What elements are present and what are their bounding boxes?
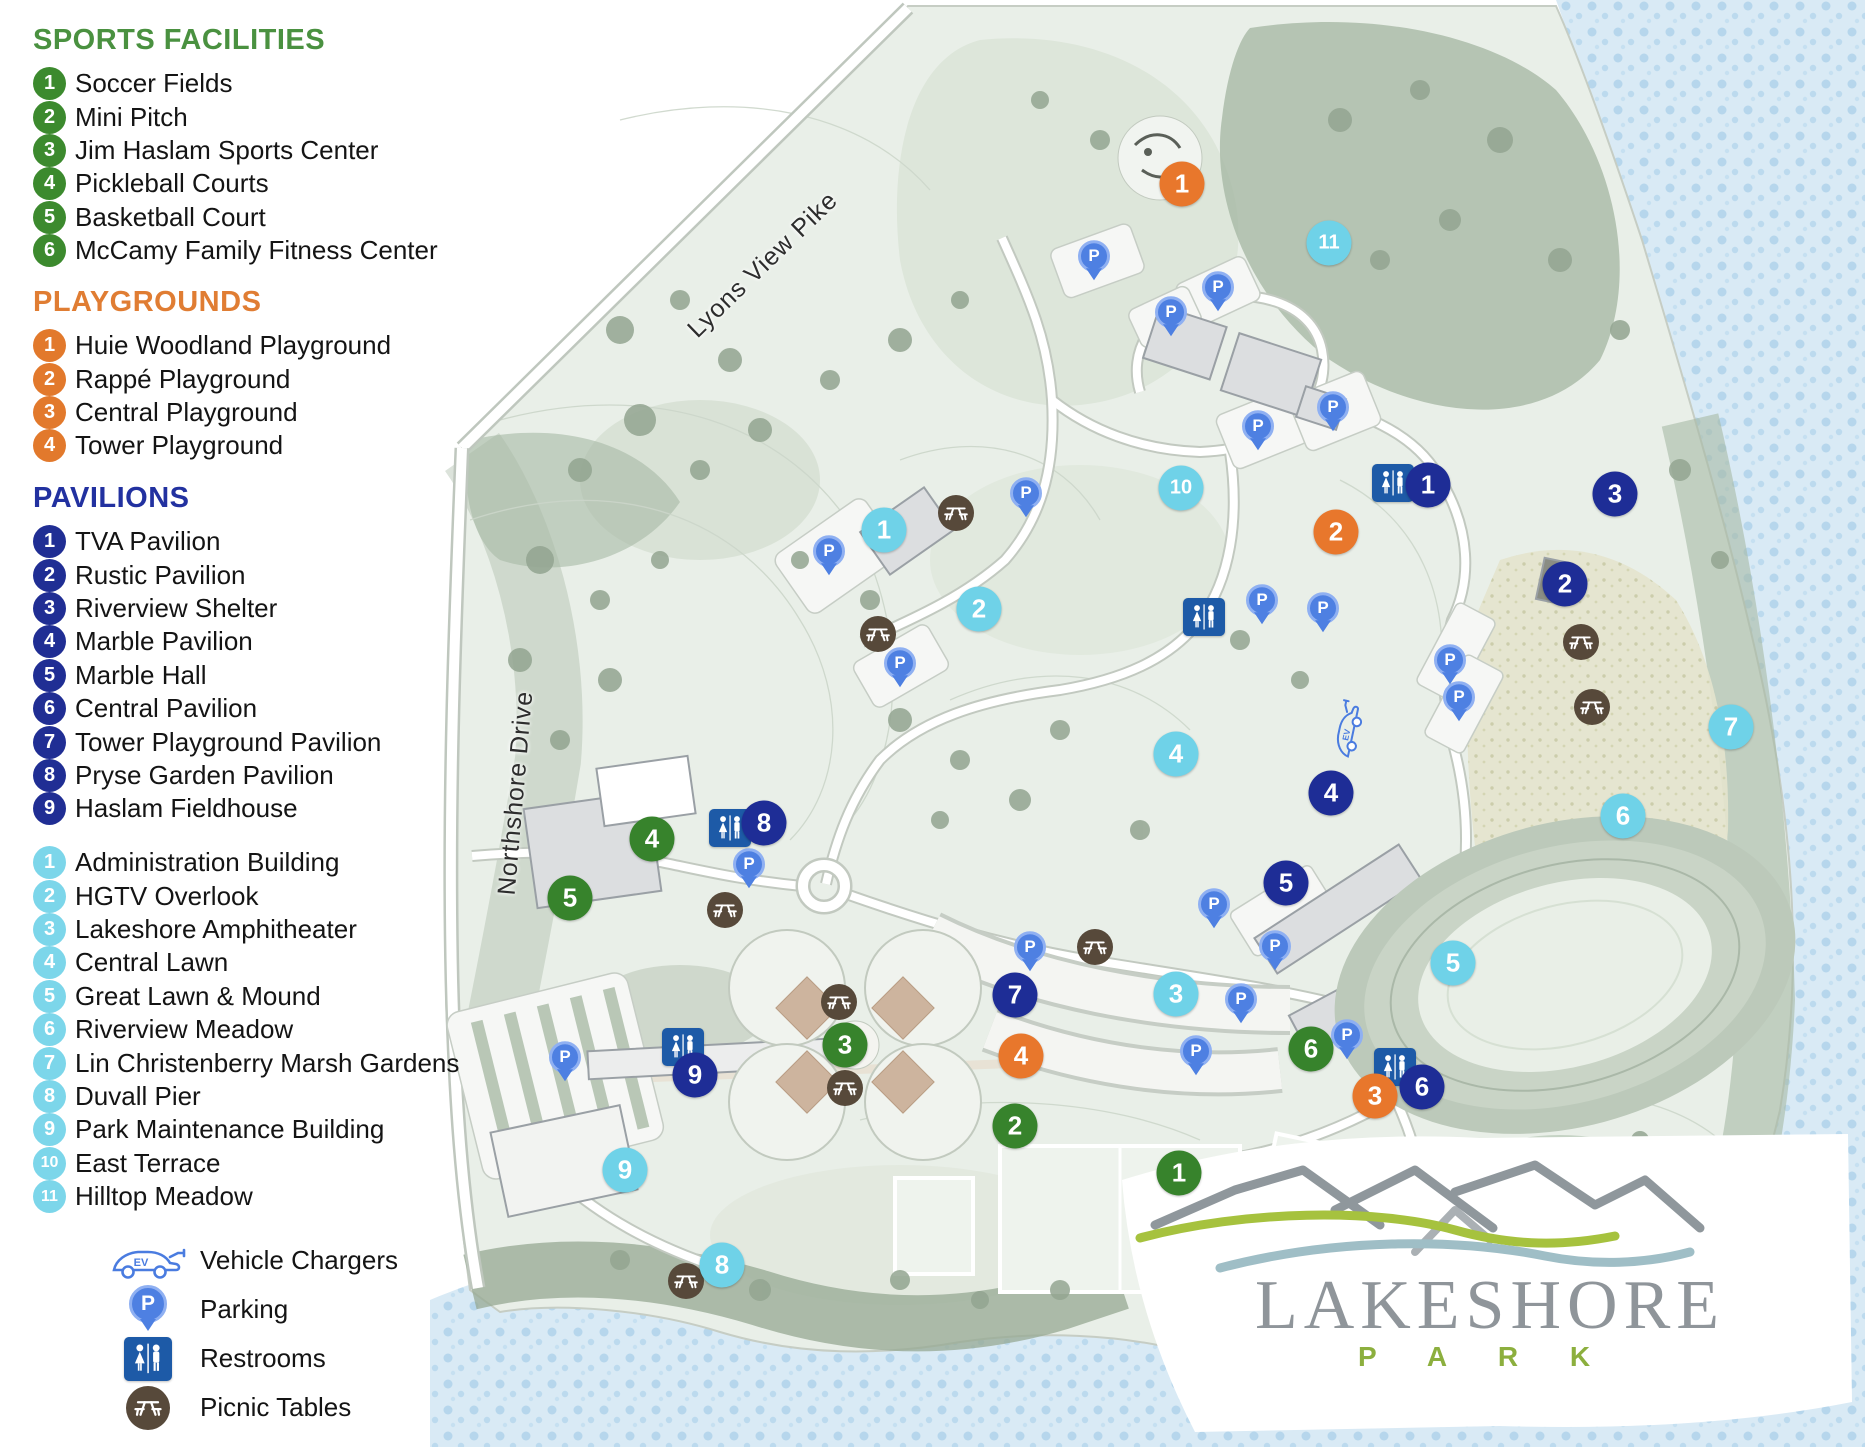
legend-item-number: 2 <box>33 880 66 913</box>
legend-item-label: Pryse Garden Pavilion <box>75 760 334 791</box>
map-marker-features-11: 11 <box>1307 221 1352 266</box>
legend-item-number: 1 <box>33 525 66 558</box>
legend-item-label: Huie Woodland Playground <box>75 330 391 361</box>
legend-item-label: Pickleball Courts <box>75 168 269 199</box>
parking-icon: P <box>100 1285 196 1335</box>
parking-pin: P <box>1246 584 1278 616</box>
marker-number: 2 <box>1329 517 1343 548</box>
legend-item-label: Lakeshore Amphitheater <box>75 914 357 945</box>
map-marker-features-2: 2 <box>957 587 1002 632</box>
legend-item-label: Mini Pitch <box>75 102 188 133</box>
legend-item-label: Jim Haslam Sports Center <box>75 135 378 166</box>
legend-item-number: 5 <box>33 980 66 1013</box>
map-marker-pavilions-4: 4 <box>1309 771 1354 816</box>
parking-pin: P <box>549 1041 581 1073</box>
legend-item-label: Park Maintenance Building <box>75 1114 384 1145</box>
picnic-table-icon <box>707 892 743 928</box>
legend-item-label: TVA Pavilion <box>75 526 220 557</box>
parking-pin: P <box>1307 592 1339 624</box>
legend-item-number: 2 <box>33 101 66 134</box>
legend-item-number: 5 <box>33 659 66 692</box>
legend-symbol-restrooms: Restrooms <box>100 1334 398 1383</box>
parking-pin: P <box>1155 296 1187 328</box>
legend-item-number: 10 <box>33 1147 66 1180</box>
parking-pin: P <box>1443 681 1475 713</box>
marker-number: 8 <box>715 1250 729 1281</box>
marker-number: 6 <box>1304 1034 1318 1065</box>
map-marker-features-5: 5 <box>1431 941 1476 986</box>
legend-item-number: 1 <box>33 67 66 100</box>
legend-item-number: 7 <box>33 726 66 759</box>
legend-item-label: East Terrace <box>75 1148 220 1179</box>
legend-item-label: HGTV Overlook <box>75 881 259 912</box>
picnic-table-icon <box>1077 929 1113 965</box>
legend-item: 8Duvall Pier <box>33 1080 459 1113</box>
logo-name: LAKESHORE <box>1255 1267 1725 1344</box>
svg-text:EV: EV <box>134 1257 149 1269</box>
map-marker-features-6: 6 <box>1601 794 1646 839</box>
legend-item: 5Great Lawn & Mound <box>33 980 459 1013</box>
legend-symbol-parking: PParking <box>100 1285 398 1334</box>
map-marker-pavilions-8: 8 <box>742 801 787 846</box>
marker-number: 8 <box>757 808 771 839</box>
legend-item-label: Central Playground <box>75 397 298 428</box>
legend-item: 1Huie Woodland Playground <box>33 329 391 362</box>
picnic-icon <box>100 1386 196 1430</box>
legend-item: 4Marble Pavilion <box>33 625 381 658</box>
legend-section-pavilions: PAVILIONS1TVA Pavilion2Rustic Pavilion3R… <box>33 482 381 826</box>
legend-item: 6McCamy Family Fitness Center <box>33 234 438 267</box>
legend-item-label: Haslam Fieldhouse <box>75 793 298 824</box>
restroom-icon <box>1183 598 1225 636</box>
map-marker-playgrounds-3: 3 <box>1353 1074 1398 1119</box>
legend-item-number: 2 <box>33 363 66 396</box>
legend-symbol-ev: EVVehicle Chargers <box>100 1236 398 1285</box>
legend-item-label: Marble Pavilion <box>75 626 253 657</box>
marker-number: 4 <box>1014 1041 1028 1072</box>
parking-pin: P <box>1198 888 1230 920</box>
legend-item: 4Central Lawn <box>33 946 459 979</box>
map-marker-playgrounds-1: 1 <box>1160 162 1205 207</box>
legend-item-number: 9 <box>33 1113 66 1146</box>
legend-item-label: Rustic Pavilion <box>75 560 246 591</box>
map-marker-pavilions-2: 2 <box>1543 562 1588 607</box>
legend-item: 9Haslam Fieldhouse <box>33 792 381 825</box>
legend-item-number: 6 <box>33 234 66 267</box>
legend-symbol-picnic: Picnic Tables <box>100 1383 398 1432</box>
parking-pin: P <box>1010 477 1042 509</box>
legend-item-label: Lin Christenberry Marsh Gardens <box>75 1048 459 1079</box>
legend-item: 5Basketball Court <box>33 201 438 234</box>
legend-item: 6Central Pavilion <box>33 692 381 725</box>
map-marker-playgrounds-2: 2 <box>1314 510 1359 555</box>
marker-number: 3 <box>1169 979 1183 1010</box>
marker-number: 5 <box>563 883 577 914</box>
legend-symbol-label: Picnic Tables <box>200 1392 351 1423</box>
legend-section-playgrounds: PLAYGROUNDS1Huie Woodland Playground2Rap… <box>33 286 391 463</box>
legend-item-number: 3 <box>33 134 66 167</box>
map-marker-sports-3: 3 <box>823 1023 868 1068</box>
legend-item: 3Lakeshore Amphitheater <box>33 913 459 946</box>
map-marker-pavilions-3: 3 <box>1593 472 1638 517</box>
legend-item-number: 5 <box>33 201 66 234</box>
parking-pin: P <box>813 535 845 567</box>
map-marker-pavilions-5: 5 <box>1264 861 1309 906</box>
legend-item-label: McCamy Family Fitness Center <box>75 235 438 266</box>
legend-item: 4Pickleball Courts <box>33 167 438 200</box>
marker-number: 1 <box>877 515 891 546</box>
map-marker-pavilions-7: 7 <box>993 973 1038 1018</box>
map-marker-pavilions-6: 6 <box>1400 1065 1445 1110</box>
marker-number: 5 <box>1279 868 1293 899</box>
picnic-table-icon <box>938 495 974 531</box>
legend-item-number: 7 <box>33 1047 66 1080</box>
legend-item-number: 8 <box>33 759 66 792</box>
legend-symbol-label: Vehicle Chargers <box>200 1245 398 1276</box>
legend-item-number: 3 <box>33 913 66 946</box>
marker-number: 9 <box>688 1060 702 1091</box>
marker-number: 1 <box>1421 470 1435 501</box>
legend-item: 2Rustic Pavilion <box>33 558 381 591</box>
legend-item-number: 6 <box>33 692 66 725</box>
legend-item: 7Tower Playground Pavilion <box>33 725 381 758</box>
parking-pin: P <box>1242 410 1274 442</box>
legend-item: 4Tower Playground <box>33 429 391 462</box>
legend-item-label: Basketball Court <box>75 202 266 233</box>
legend-item: 8Pryse Garden Pavilion <box>33 759 381 792</box>
parking-pin: P <box>884 647 916 679</box>
legend-item: 1Soccer Fields <box>33 67 438 100</box>
picnic-table-icon <box>1574 689 1610 725</box>
legend-item-label: Tower Playground <box>75 430 283 461</box>
legend-item-label: Duvall Pier <box>75 1081 201 1112</box>
restrooms-icon <box>100 1337 196 1381</box>
marker-number: 1 <box>1175 169 1189 200</box>
map-marker-sports-6: 6 <box>1289 1027 1334 1072</box>
legend-item: 10East Terrace <box>33 1147 459 1180</box>
marker-number: 5 <box>1446 948 1460 979</box>
legend-item: 3Jim Haslam Sports Center <box>33 134 438 167</box>
marker-number: 3 <box>1608 479 1622 510</box>
map-marker-pavilions-9: 9 <box>673 1053 718 1098</box>
legend-item: 3Central Playground <box>33 396 391 429</box>
picnic-table-icon <box>827 1070 863 1106</box>
map-marker-features-10: 10 <box>1159 466 1204 511</box>
legend-item-label: Central Pavilion <box>75 693 257 724</box>
marker-number: 11 <box>1318 232 1339 255</box>
map-legend: SPORTS FACILITIES1Soccer Fields2Mini Pit… <box>0 0 440 1447</box>
legend-item-number: 1 <box>33 846 66 879</box>
map-marker-features-4: 4 <box>1154 732 1199 777</box>
legend-item-number: 3 <box>33 396 66 429</box>
legend-item-number: 6 <box>33 1013 66 1046</box>
legend-item-label: Rappé Playground <box>75 364 290 395</box>
legend-item-number: 2 <box>33 559 66 592</box>
parking-pin: P <box>1331 1019 1363 1051</box>
parking-pin: P <box>733 848 765 880</box>
legend-item-number: 1 <box>33 329 66 362</box>
map-marker-features-7: 7 <box>1709 705 1754 750</box>
parking-pin: P <box>1078 240 1110 272</box>
legend-item-label: Soccer Fields <box>75 68 233 99</box>
legend-item-number: 9 <box>33 792 66 825</box>
parking-pin: P <box>1317 391 1349 423</box>
legend-item-label: Tower Playground Pavilion <box>75 727 381 758</box>
map-marker-features-3: 3 <box>1154 972 1199 1017</box>
parking-pin: P <box>1202 271 1234 303</box>
legend-item-label: Hilltop Meadow <box>75 1181 253 1212</box>
picnic-table-icon <box>668 1263 704 1299</box>
legend-section-features: 1Administration Building2HGTV Overlook3L… <box>33 846 459 1213</box>
logo-sub: P A R K <box>1358 1341 1612 1372</box>
legend-item-number: 4 <box>33 625 66 658</box>
parking-pin: P <box>1259 930 1291 962</box>
legend-item-label: Riverview Shelter <box>75 593 277 624</box>
marker-number: 6 <box>1415 1072 1429 1103</box>
marker-number: 3 <box>1368 1081 1382 1112</box>
legend-item-label: Great Lawn & Mound <box>75 981 321 1012</box>
map-marker-sports-1: 1 <box>1157 1151 1202 1196</box>
ev-icon: EV <box>100 1240 196 1282</box>
legend-symbols: EVVehicle ChargersPParkingRestroomsPicni… <box>100 1236 398 1432</box>
legend-item: 1TVA Pavilion <box>33 525 381 558</box>
legend-item: 7Lin Christenberry Marsh Gardens <box>33 1046 459 1079</box>
picnic-table-icon <box>1563 624 1599 660</box>
legend-section-title: PLAYGROUNDS <box>33 286 391 319</box>
legend-item: 6Riverview Meadow <box>33 1013 459 1046</box>
legend-symbol-label: Parking <box>200 1294 288 1325</box>
marker-number: 4 <box>645 824 659 855</box>
map-marker-sports-5: 5 <box>548 876 593 921</box>
legend-item: 2HGTV Overlook <box>33 879 459 912</box>
legend-item: 3Riverview Shelter <box>33 592 381 625</box>
marker-number: 2 <box>1008 1111 1022 1142</box>
map-marker-playgrounds-4: 4 <box>999 1034 1044 1079</box>
legend-item-label: Central Lawn <box>75 947 228 978</box>
legend-item-number: 4 <box>33 946 66 979</box>
marker-number: 4 <box>1324 778 1338 809</box>
marker-number: 7 <box>1724 712 1738 743</box>
map-marker-pavilions-1: 1 <box>1406 463 1451 508</box>
park-map-poster: { "legend": { "sections": [ {"id":"sport… <box>0 0 1865 1447</box>
parking-pin: P <box>1225 983 1257 1015</box>
legend-item: 5Marble Hall <box>33 659 381 692</box>
legend-item-label: Riverview Meadow <box>75 1014 293 1045</box>
legend-item-number: 3 <box>33 592 66 625</box>
legend-item-number: 8 <box>33 1080 66 1113</box>
legend-item: 9Park Maintenance Building <box>33 1113 459 1146</box>
map-marker-features-1: 1 <box>862 508 907 553</box>
legend-item: 1Administration Building <box>33 846 459 879</box>
marker-number: 9 <box>618 1155 632 1186</box>
parking-pin: P <box>1434 644 1466 676</box>
parking-pin: P <box>1014 931 1046 963</box>
marker-number: 1 <box>1172 1158 1186 1189</box>
picnic-table-icon <box>821 984 857 1020</box>
marker-number: 10 <box>1170 477 1192 500</box>
legend-item-number: 4 <box>33 167 66 200</box>
map-marker-sports-2: 2 <box>993 1104 1038 1149</box>
map-marker-features-9: 9 <box>603 1148 648 1193</box>
legend-item: 11Hilltop Meadow <box>33 1180 459 1213</box>
map-marker-features-8: 8 <box>700 1243 745 1288</box>
marker-number: 2 <box>972 594 986 625</box>
legend-section-sports: SPORTS FACILITIES1Soccer Fields2Mini Pit… <box>33 24 438 267</box>
marker-number: 7 <box>1008 980 1022 1011</box>
marker-number: 3 <box>838 1030 852 1061</box>
map-marker-sports-4: 4 <box>630 817 675 862</box>
legend-item-label: Administration Building <box>75 847 339 878</box>
legend-item: 2Rappé Playground <box>33 362 391 395</box>
marker-number: 4 <box>1169 739 1183 770</box>
park-logo: LAKESHORE P A R K <box>1125 1130 1855 1420</box>
legend-item-label: Marble Hall <box>75 660 207 691</box>
legend-section-title: PAVILIONS <box>33 482 381 515</box>
legend-section-title: SPORTS FACILITIES <box>33 24 438 57</box>
parking-pin: P <box>1180 1035 1212 1067</box>
marker-number: 6 <box>1616 801 1630 832</box>
legend-symbol-label: Restrooms <box>200 1343 326 1374</box>
legend-item: 2Mini Pitch <box>33 100 438 133</box>
legend-item-number: 4 <box>33 429 66 462</box>
legend-item-number: 11 <box>33 1180 66 1213</box>
marker-number: 2 <box>1558 569 1572 600</box>
